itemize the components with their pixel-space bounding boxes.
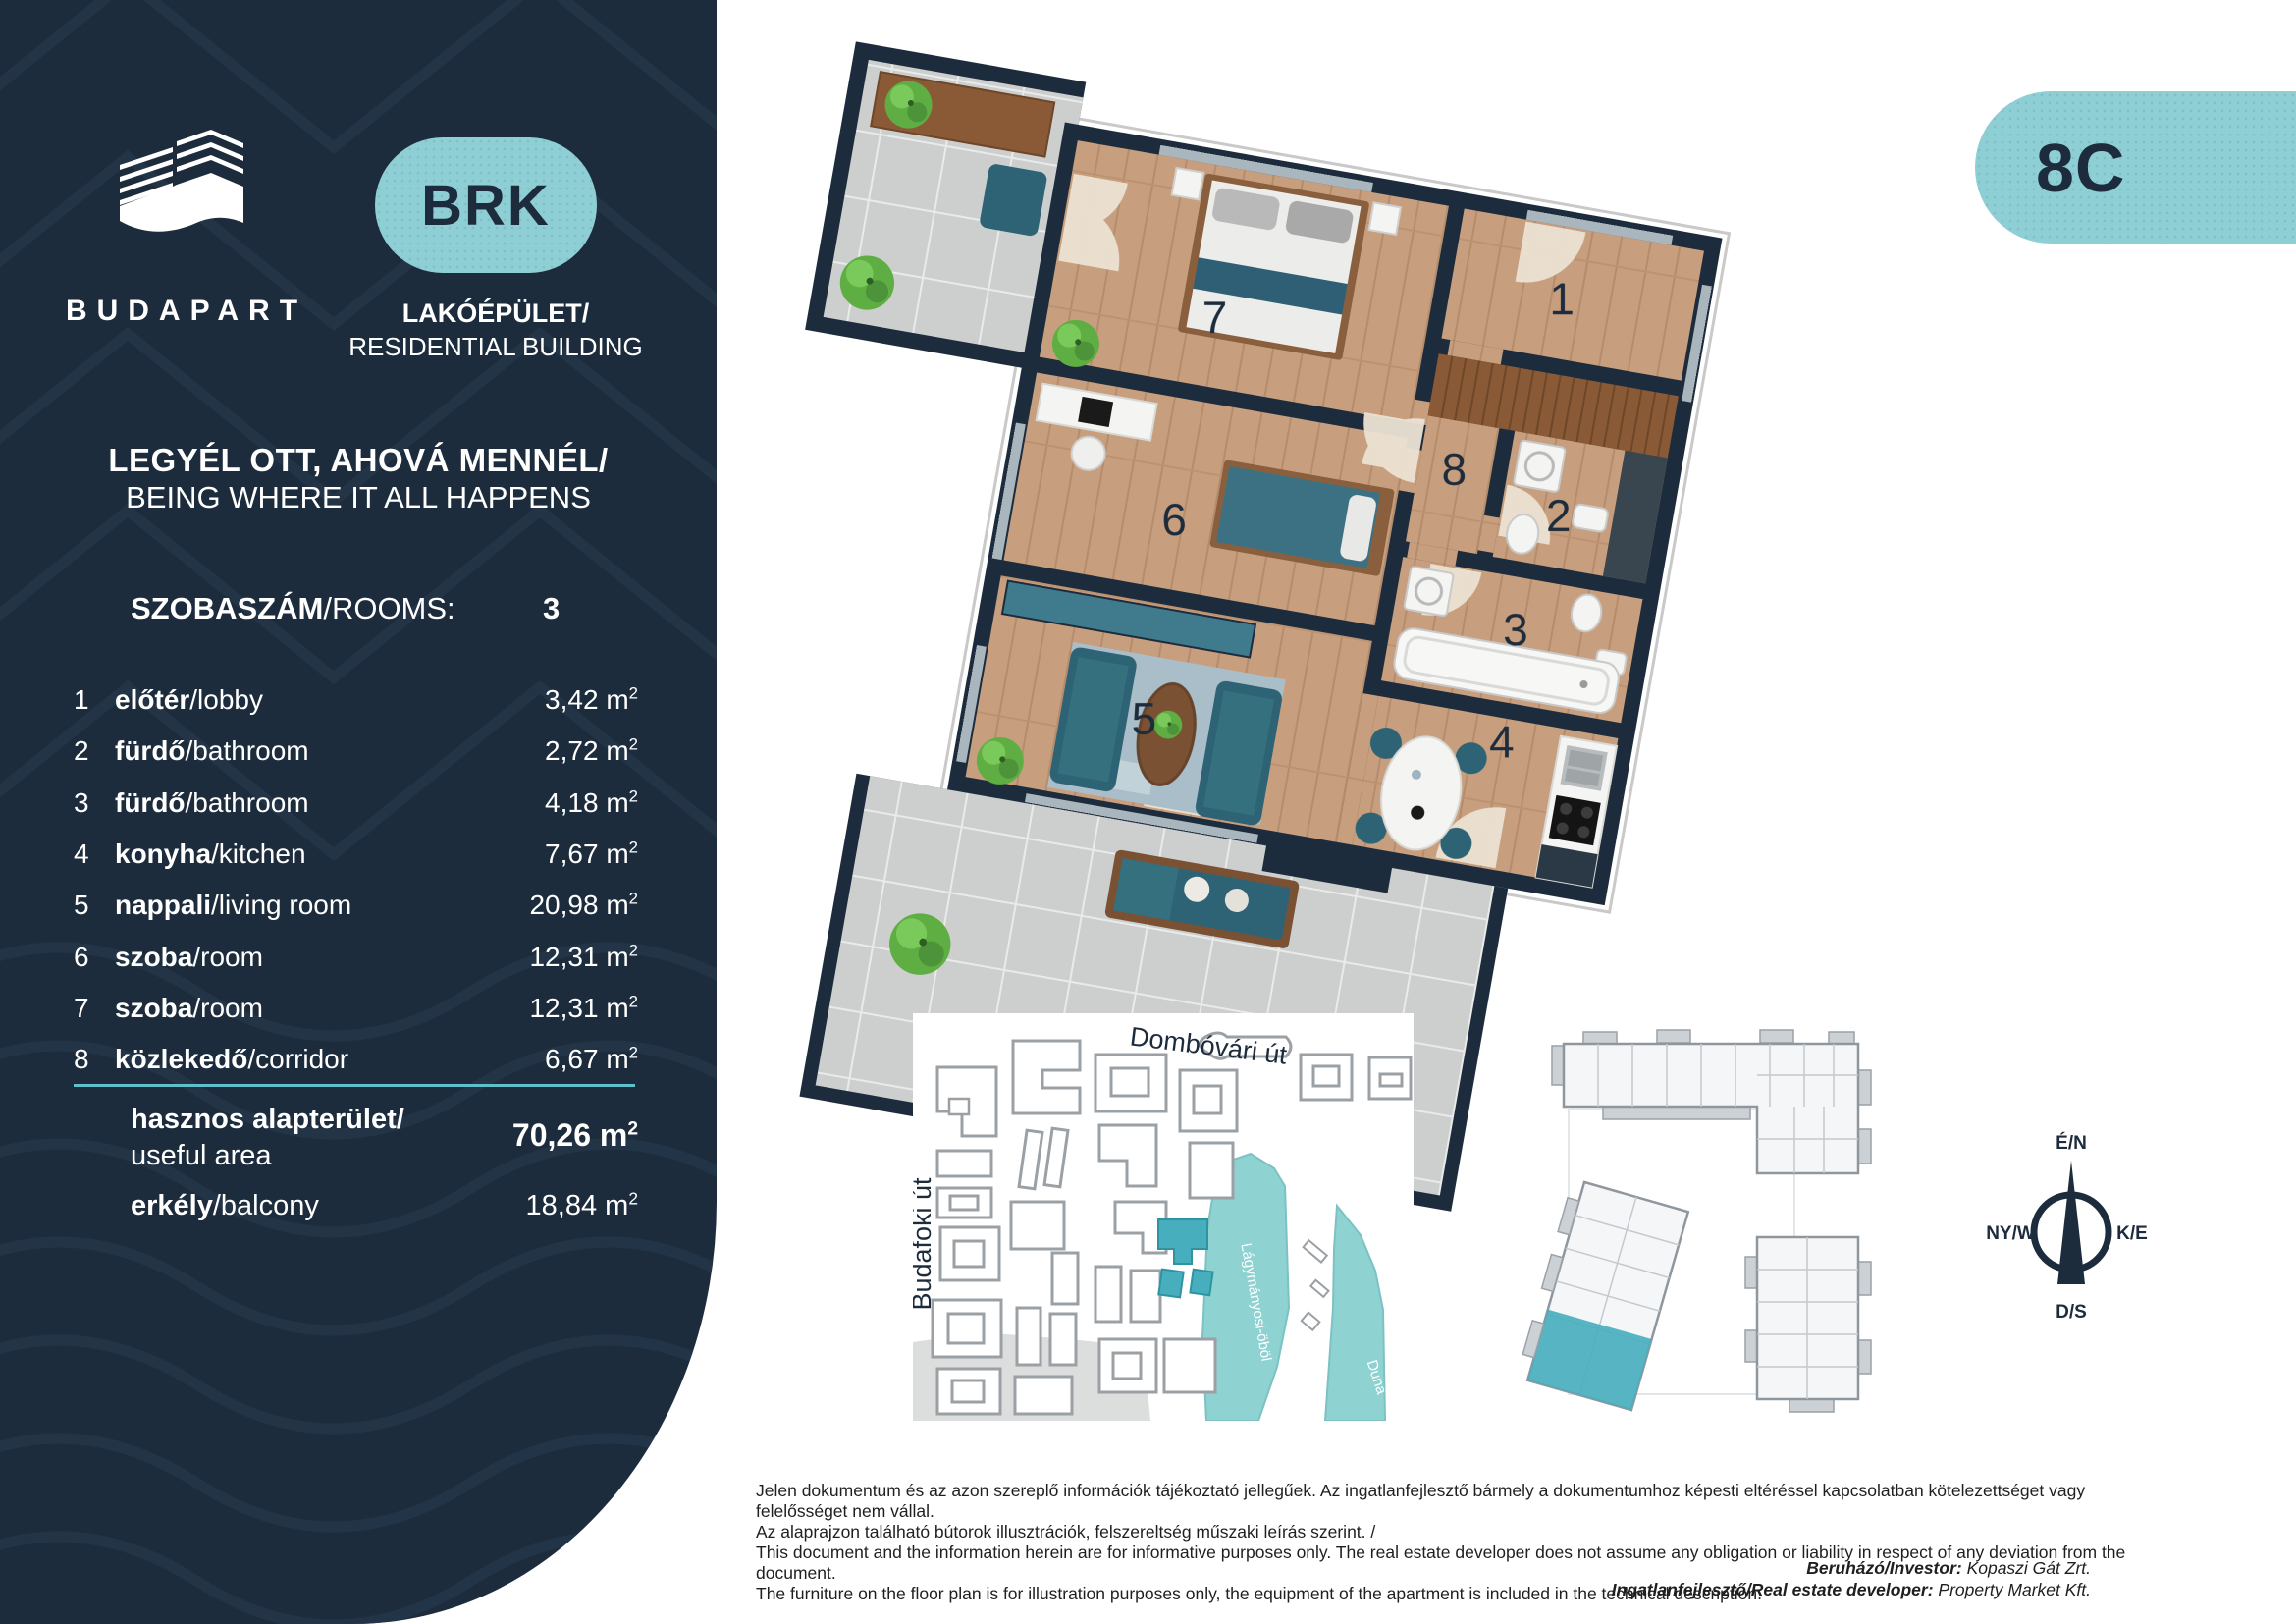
rooms-header: SZOBASZÁM/ROOMS: 3 <box>74 591 638 626</box>
highlighted-wing <box>1517 1179 1688 1410</box>
compass-east: K/E <box>2116 1223 2148 1244</box>
tagline-hu: LEGYÉL OTT, AHOVÁ MENNÉL/ <box>20 442 697 479</box>
room-list: 1 előtér/lobby 3,42 m2 2 fürdő/bathroom … <box>74 675 638 1085</box>
totals-divider <box>74 1084 635 1087</box>
svg-text:2: 2 <box>1546 490 1572 541</box>
developer-credits: Beruházó/Investor: Kopaszi Gát Zrt. Inga… <box>1612 1557 2091 1600</box>
room-row: 3 fürdő/bathroom 4,18 m2 <box>74 778 638 829</box>
rooms-count: 3 <box>543 591 560 626</box>
room-row: 1 előtér/lobby 3,42 m2 <box>74 675 638 726</box>
svg-text:5: 5 <box>1132 693 1157 744</box>
useful-area-hu: hasznos alapterület/ <box>131 1102 404 1138</box>
room-row: 6 szoba/room 12,31 m2 <box>74 931 638 982</box>
unit-label-pill: 8C <box>1975 91 2296 244</box>
svg-text:8: 8 <box>1442 444 1468 495</box>
tagline-en: BEING WHERE IT ALL HAPPENS <box>20 479 697 516</box>
balcony-area-row: erkély/balcony 18,84 m2 <box>74 1190 638 1222</box>
room-number: 7 <box>74 993 115 1024</box>
svg-text:3: 3 <box>1503 604 1528 655</box>
building-badge-label: BRK <box>421 173 551 239</box>
street-label-left: Budafoki út <box>913 1177 936 1311</box>
compass-north: É/N <box>2056 1132 2087 1154</box>
brand-wordmark: BUDAPART <box>59 295 314 328</box>
room-number: 2 <box>74 735 115 767</box>
compass-west: NY/W <box>1986 1223 2035 1244</box>
room-row: 4 konyha/kitchen 7,67 m2 <box>74 829 638 880</box>
balcony-area-value: 18,84 m2 <box>526 1190 638 1222</box>
room-row: 2 fürdő/bathroom 2,72 m2 <box>74 726 638 777</box>
useful-area-value: 70,26 m2 <box>512 1117 638 1154</box>
room-number: 6 <box>74 942 115 973</box>
svg-text:4: 4 <box>1489 716 1515 767</box>
room-row: 7 szoba/room 12,31 m2 <box>74 983 638 1034</box>
tagline: LEGYÉL OTT, AHOVÁ MENNÉL/ BEING WHERE IT… <box>20 442 697 516</box>
site-map: Dombóvári út Budafoki út Lágymányosi-öbö… <box>913 1013 1414 1421</box>
room-number: 3 <box>74 787 115 819</box>
building-type-en: RESIDENTIAL BUILDING <box>324 330 667 363</box>
budapart-logo-icon <box>118 126 245 239</box>
useful-area-row: hasznos alapterület/ useful area 70,26 m… <box>74 1102 638 1174</box>
room-number: 4 <box>74 839 115 870</box>
rooms-header-en: /ROOMS: <box>323 591 454 625</box>
building-overview-plan <box>1510 1016 1897 1421</box>
room-number: 1 <box>74 684 115 716</box>
svg-text:6: 6 <box>1161 494 1187 545</box>
building-type-hu: LAKÓÉPÜLET/ <box>324 297 667 330</box>
svg-text:7: 7 <box>1202 292 1228 343</box>
room-number: 8 <box>74 1044 115 1075</box>
building-type: LAKÓÉPÜLET/ RESIDENTIAL BUILDING <box>324 297 667 363</box>
room-row: 8 közlekedő/corridor 6,67 m2 <box>74 1034 638 1085</box>
useful-area-en: useful area <box>131 1138 404 1174</box>
rooms-header-hu: SZOBASZÁM <box>131 591 323 625</box>
compass-rose: É/N NY/W K/E D/S <box>1983 1119 2160 1330</box>
compass-needle-icon <box>2057 1161 2085 1284</box>
building-badge: BRK <box>375 137 597 273</box>
compass-south: D/S <box>2056 1302 2087 1323</box>
unit-label: 8C <box>2036 129 2125 207</box>
room-number: 5 <box>74 890 115 921</box>
sidebar-panel: BUDAPART BRK LAKÓÉPÜLET/ RESIDENTIAL BUI… <box>0 0 717 1624</box>
room-row: 5 nappali/living room 20,98 m2 <box>74 880 638 931</box>
svg-text:1: 1 <box>1549 273 1575 324</box>
